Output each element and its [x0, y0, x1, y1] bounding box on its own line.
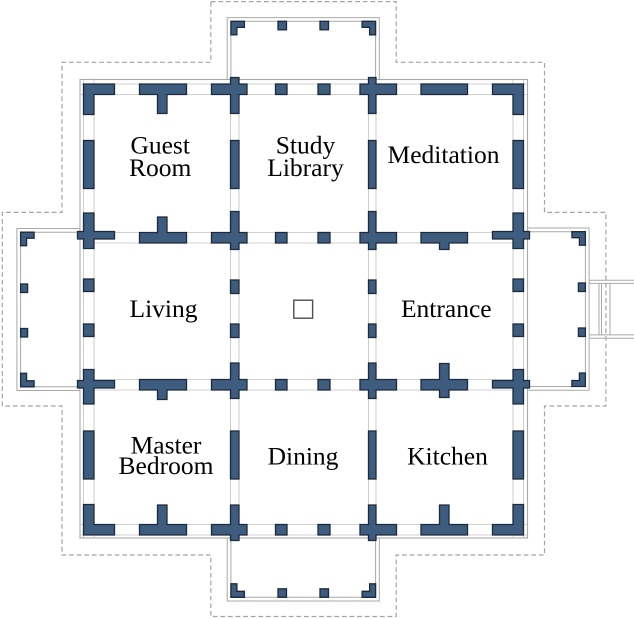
svg-text:Entrance: Entrance — [401, 294, 492, 323]
svg-text:Meditation: Meditation — [388, 140, 500, 169]
svg-text:Living: Living — [130, 294, 198, 323]
svg-text:Room: Room — [129, 153, 192, 182]
svg-text:Kitchen: Kitchen — [407, 442, 488, 471]
svg-text:Dining: Dining — [268, 442, 339, 471]
svg-text:Library: Library — [267, 153, 344, 182]
svg-text:Bedroom: Bedroom — [119, 451, 214, 480]
